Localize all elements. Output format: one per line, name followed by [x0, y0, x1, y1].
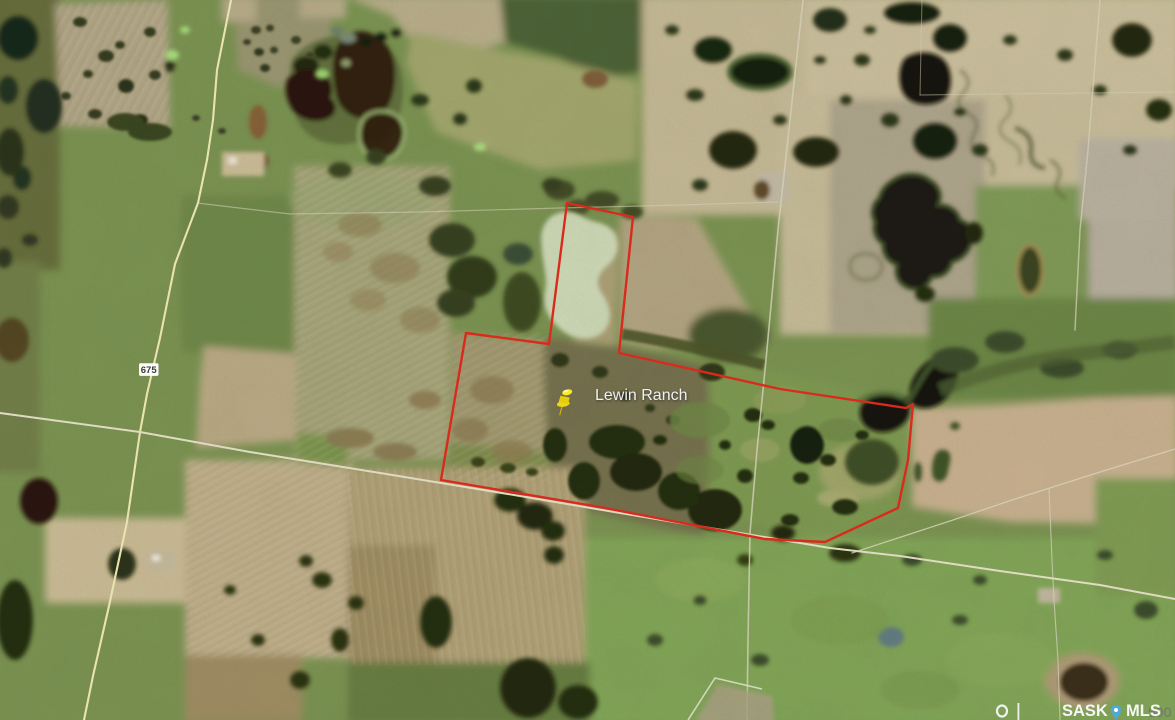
- svg-text:MLS: MLS: [1126, 702, 1161, 720]
- svg-text:675: 675: [141, 365, 158, 376]
- svg-text:SASK: SASK: [1062, 702, 1108, 720]
- svg-text:Lewin Ranch: Lewin Ranch: [595, 387, 688, 404]
